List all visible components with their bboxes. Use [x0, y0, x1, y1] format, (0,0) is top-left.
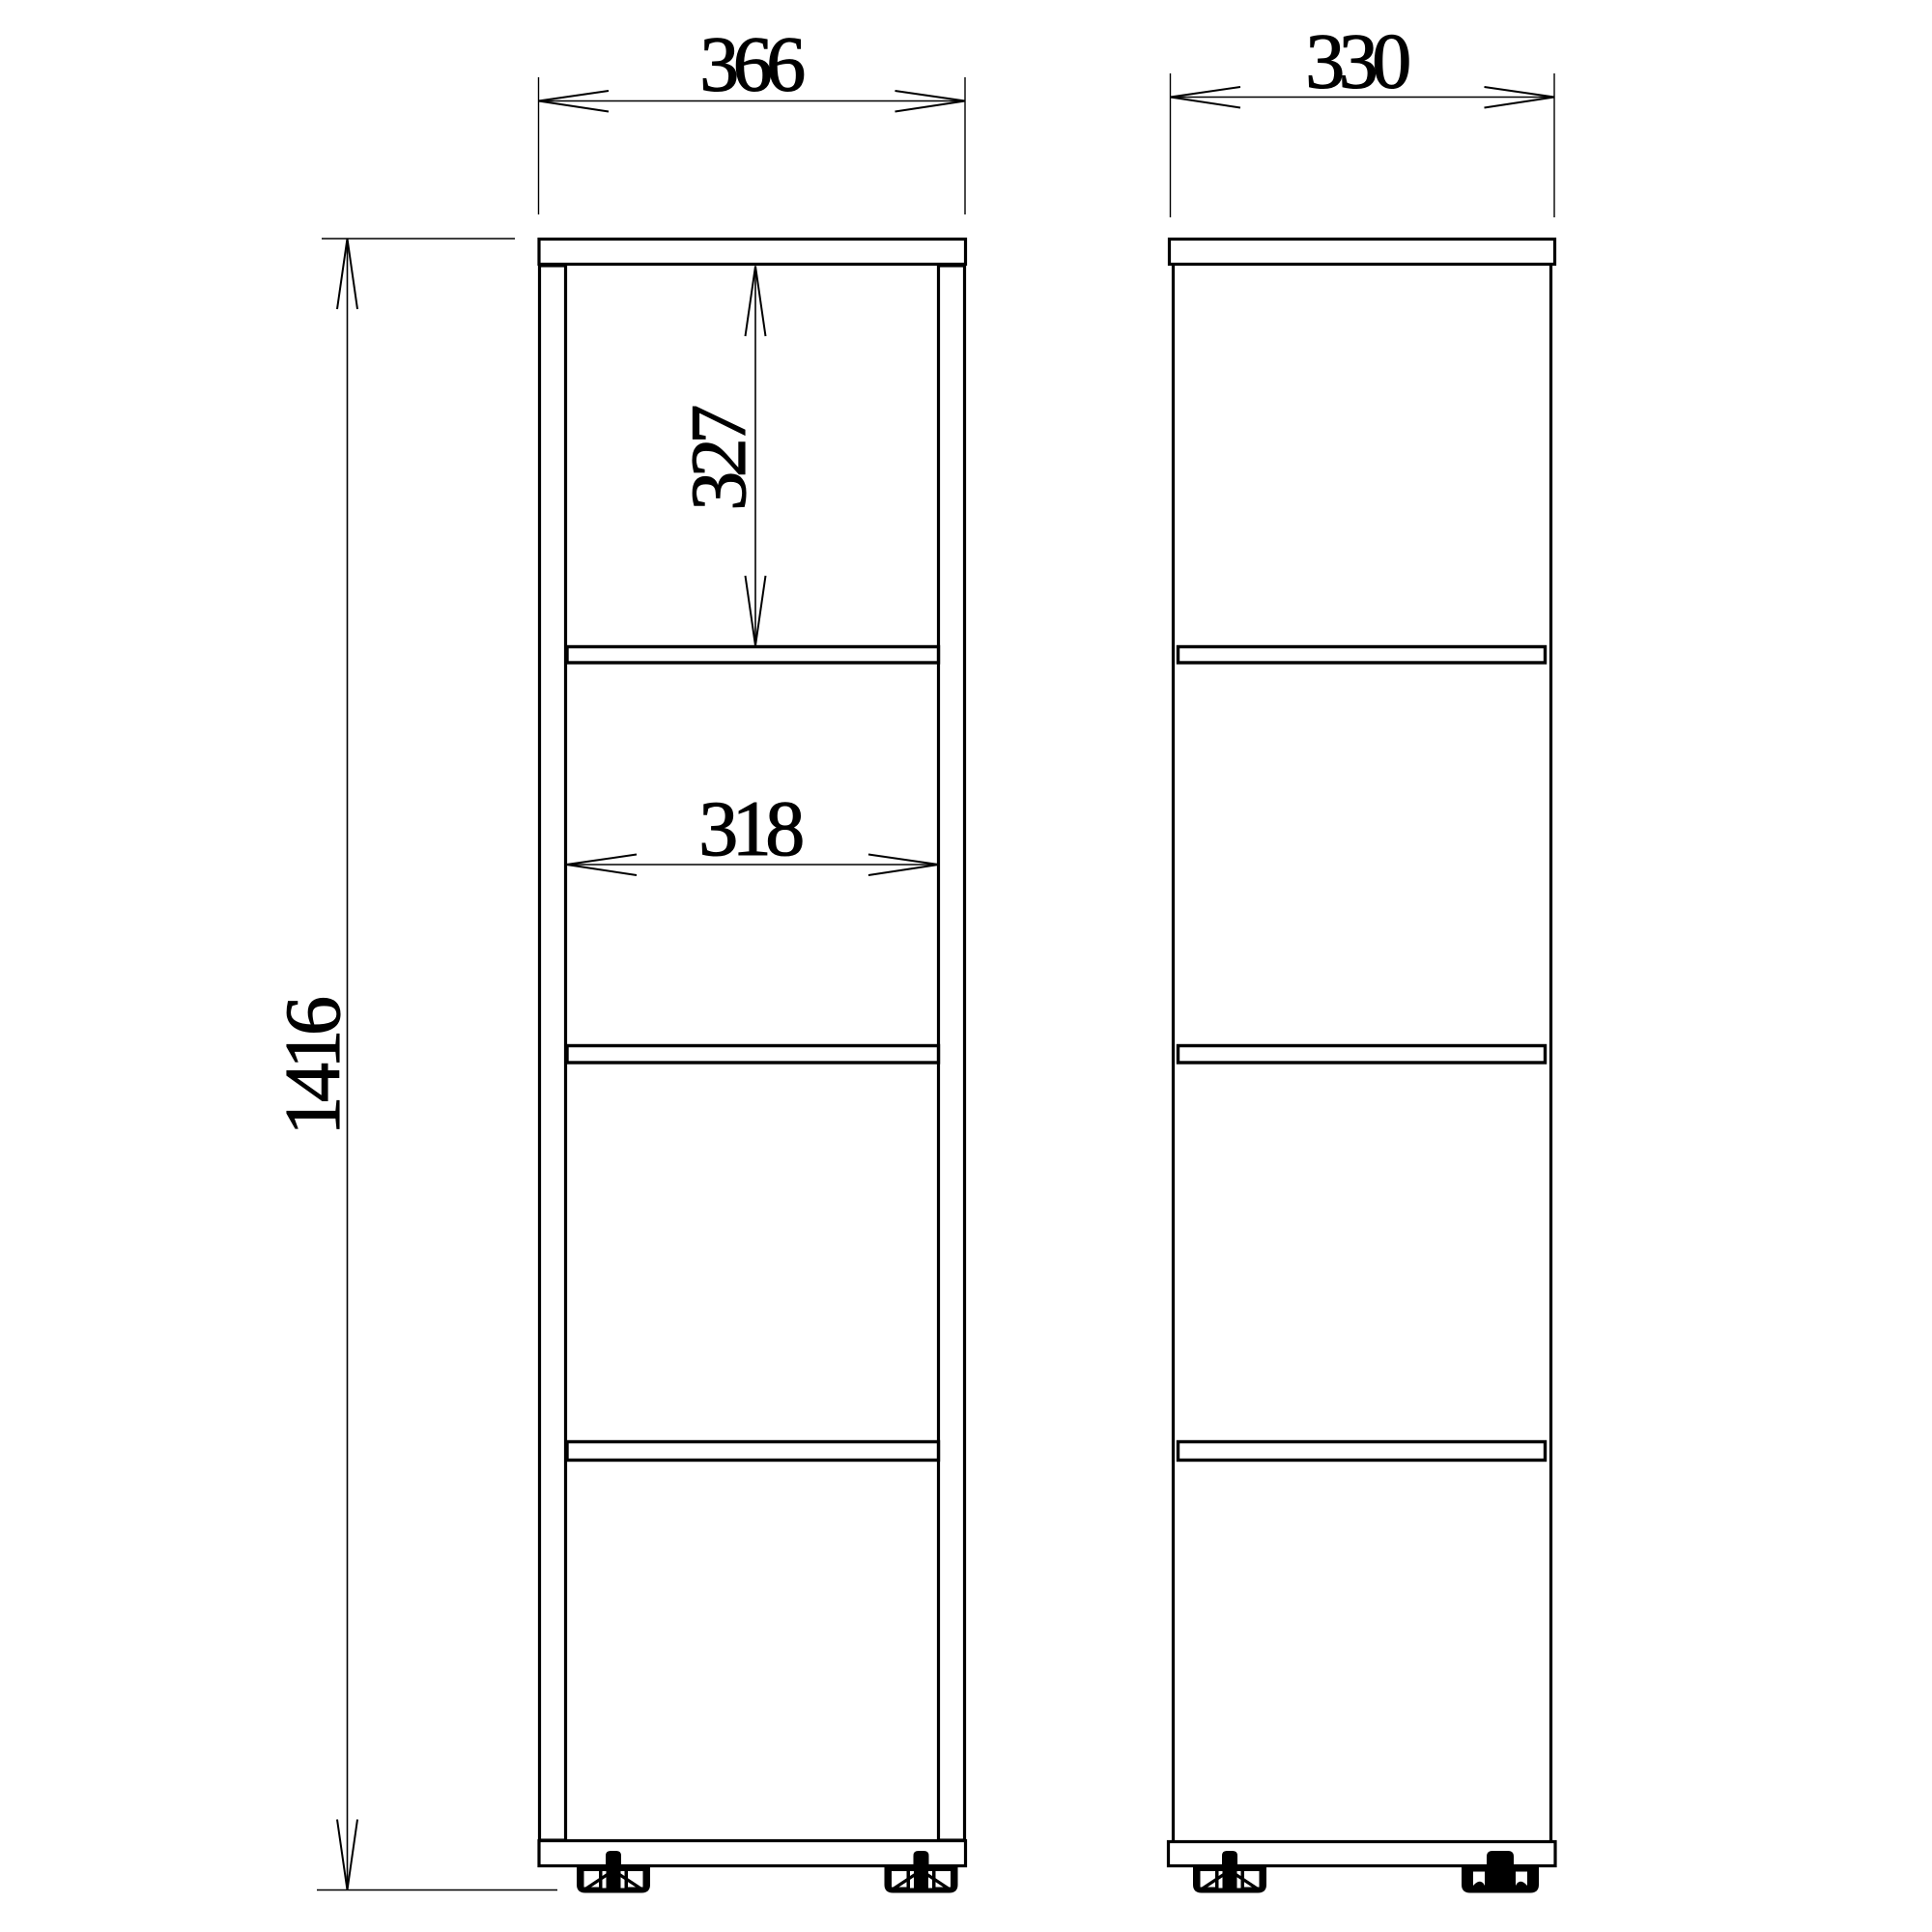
svg-text:1416: 1416 [269, 998, 356, 1136]
svg-text:366: 366 [699, 20, 804, 108]
svg-text:330: 330 [1305, 17, 1408, 105]
svg-text:327: 327 [674, 407, 762, 511]
svg-text:318: 318 [698, 784, 802, 872]
